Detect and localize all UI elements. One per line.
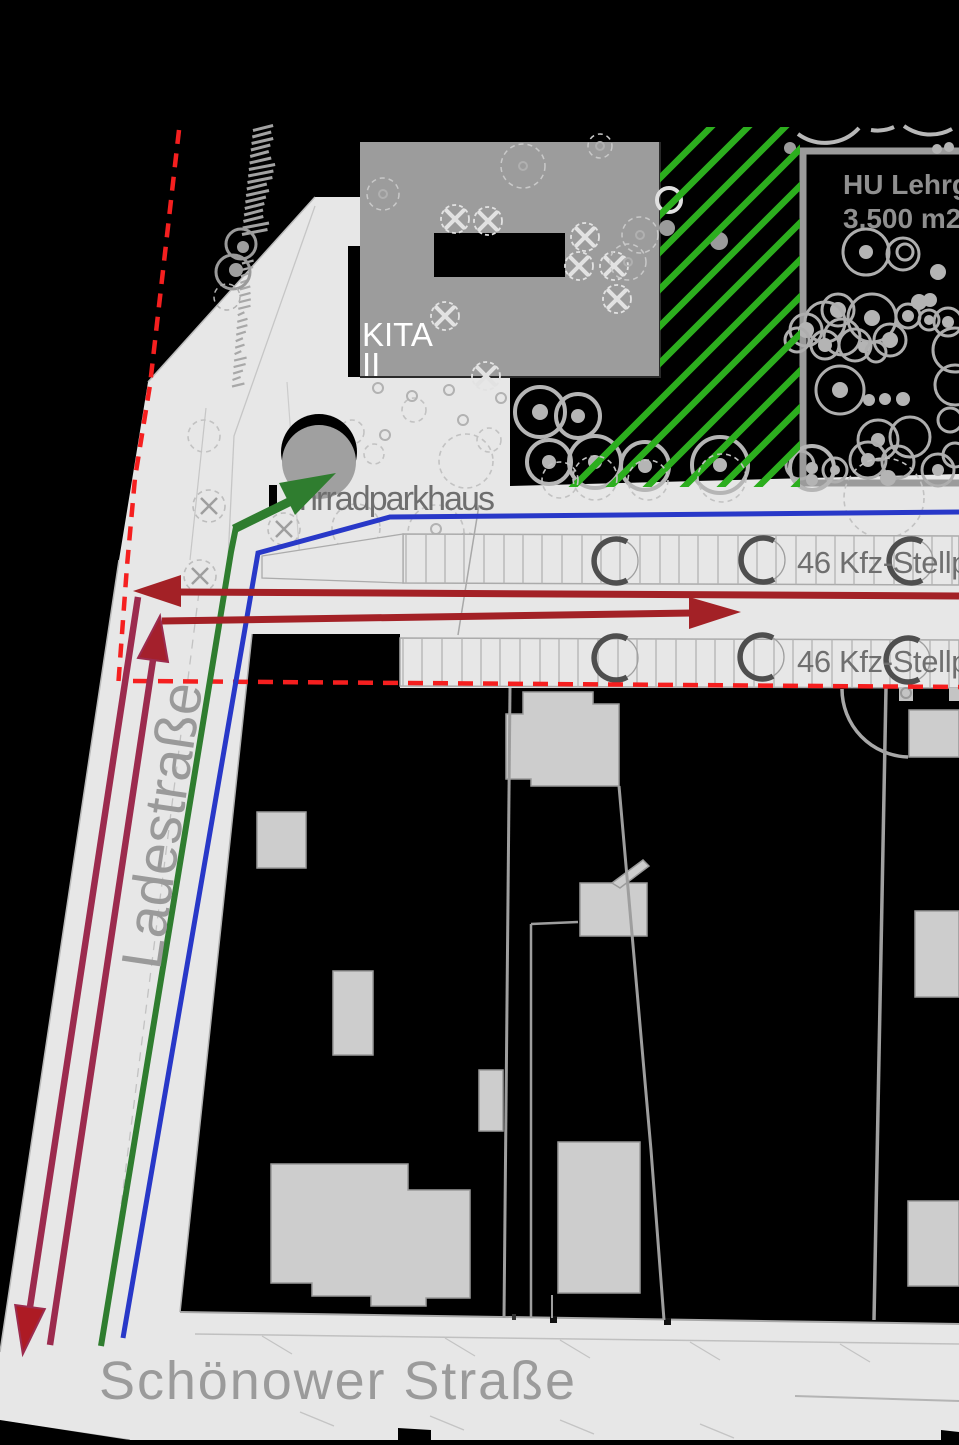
svg-text:46 Kfz-Stellpl: 46 Kfz-Stellpl	[797, 545, 959, 580]
svg-text:Schönower Straße: Schönower Straße	[99, 1351, 575, 1411]
svg-text:3.500 m2 B: 3.500 m2 B	[843, 203, 959, 234]
svg-text:46 Kfz-Stellpl: 46 Kfz-Stellpl	[797, 644, 959, 679]
svg-text:HU Lehrgarten: HU Lehrgarten	[843, 169, 959, 200]
svg-text:II: II	[362, 346, 380, 383]
svg-text:hrradparkhaus: hrradparkhaus	[299, 480, 495, 518]
